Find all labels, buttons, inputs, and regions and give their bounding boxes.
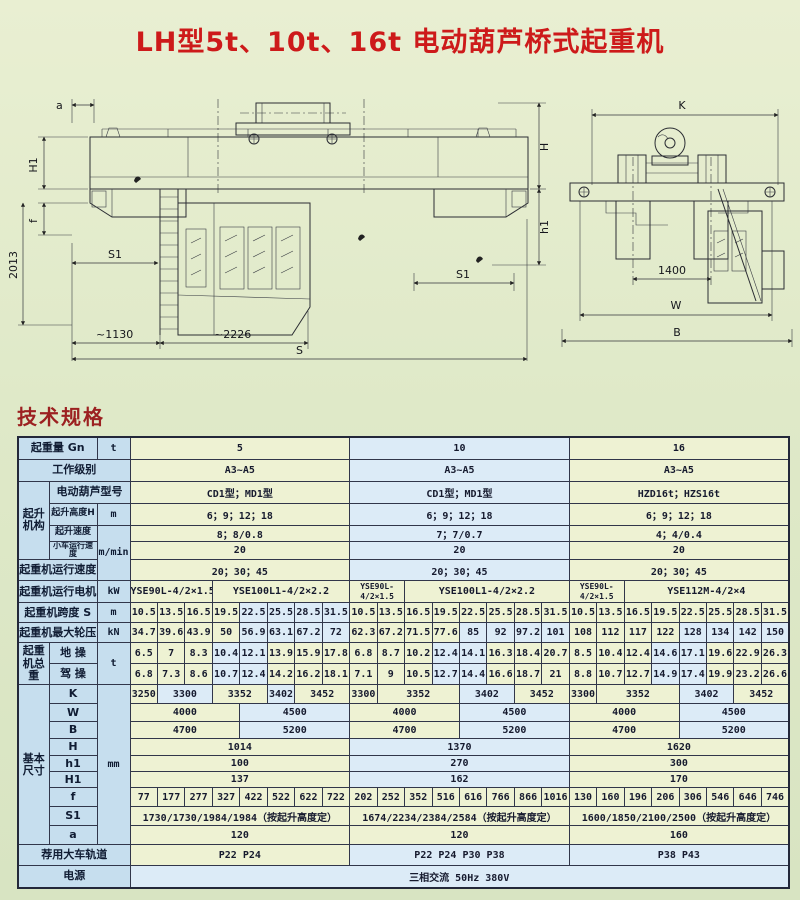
dim-a-label: a (56, 99, 63, 112)
spec-cell: 422 (240, 788, 267, 807)
spec-cell: 6；9；12；18 (350, 503, 570, 525)
row-group: 起重机总重 (18, 643, 49, 685)
spec-cell: 13.9 (267, 643, 294, 664)
spec-cell: 1620 (569, 739, 789, 756)
spec-cell: 22.9 (734, 643, 761, 664)
spec-cell: 92 (487, 623, 514, 643)
table-row: 电源三相交流 50Hz 380V (18, 866, 789, 888)
dim-s-label: S (296, 344, 303, 357)
spec-cell: 8.3 (185, 643, 212, 664)
spec-cell: 7.3 (157, 664, 184, 685)
spec-cell: 206 (652, 788, 679, 807)
spec-cell: 13.5 (157, 603, 184, 623)
row-label: 起升高度H (49, 503, 97, 525)
spec-cell: 14.4 (459, 664, 486, 685)
spec-cell: HZD16t；HZS16t (569, 481, 789, 503)
spec-cell: 108 (569, 623, 596, 643)
spec-cell: 4700 (350, 722, 460, 739)
spec-cell: 97.2 (514, 623, 541, 643)
dim-2013-label: 2013 (8, 251, 20, 279)
spec-cell: 13.5 (377, 603, 404, 623)
spec-cell: 4000 (569, 704, 679, 722)
spec-cell: 19.5 (652, 603, 679, 623)
row-unit: kN (97, 623, 130, 643)
spec-cell: 71.5 (405, 623, 432, 643)
spec-cell: 7；7/0.7 (350, 525, 570, 541)
spec-cell: CD1型；MD1型 (130, 481, 350, 503)
spec-cell: 20 (569, 541, 789, 560)
spec-cell: 16.6 (487, 664, 514, 685)
spec-cell: 28.5 (514, 603, 541, 623)
spec-cell: 3402 (679, 685, 734, 704)
spec-cell: 63.1 (267, 623, 294, 643)
dim-s1-left-label: S1 (108, 248, 122, 261)
table-row: B470052004700520047005200 (18, 722, 789, 739)
row-label: W (49, 704, 97, 722)
spec-cell: YSE90L-4/2×1.5 (130, 581, 212, 603)
spec-cell: 25.5 (707, 603, 734, 623)
spec-cell: 150 (761, 623, 789, 643)
spec-cell: 3452 (295, 685, 350, 704)
spec-cell: 866 (514, 788, 541, 807)
spec-cell: 277 (185, 788, 212, 807)
spec-cell: 6；9；12；18 (569, 503, 789, 525)
spec-cell: 3300 (157, 685, 212, 704)
spec-cell: CD1型；MD1型 (350, 481, 570, 503)
row-group: 基本尺寸 (18, 685, 49, 845)
spec-cell: 77.6 (432, 623, 459, 643)
row-label: 起重量 Gn (18, 437, 97, 459)
row-label: S1 (49, 807, 97, 826)
spec-cell: 25.5 (487, 603, 514, 623)
spec-cell: YSE112M-4/2×4 (624, 581, 789, 603)
spec-cell: 112 (597, 623, 624, 643)
spec-cell: 21 (542, 664, 569, 685)
spec-cell: 137 (130, 772, 350, 788)
dim-w-label: W (671, 299, 682, 312)
spec-cell: 13.5 (597, 603, 624, 623)
spec-cell: 522 (267, 788, 294, 807)
table-row: H101413701620 (18, 739, 789, 756)
spec-cell: 18.4 (514, 643, 541, 664)
row-label: H1 (49, 772, 97, 788)
row-label: 起重机运行速度 (18, 560, 97, 581)
table-row: 起重机运行电机kWYSE90L-4/2×1.5YSE100L1-4/2×2.2Y… (18, 581, 789, 603)
table-row: S11730/1730/1984/1984（按起升高度定）1674/2234/2… (18, 807, 789, 826)
spec-cell: 196 (624, 788, 651, 807)
spec-cell: 10.5 (569, 603, 596, 623)
spec-cell: 20；30；45 (350, 560, 570, 581)
spec-cell: 8；8/0.8 (130, 525, 350, 541)
spec-cell: 26.3 (761, 643, 789, 664)
spec-cell: 3452 (734, 685, 789, 704)
spec-cell: 1600/1850/2100/2500（按起升高度定） (569, 807, 789, 826)
spec-cell: 14.6 (652, 643, 679, 664)
spec-cell: 202 (350, 788, 377, 807)
spec-cell: A3~A5 (130, 459, 350, 481)
spec-cell: 4500 (679, 704, 789, 722)
spec-cell: 14.9 (652, 664, 679, 685)
row-label: a (49, 826, 97, 845)
spec-cell: 10.5 (130, 603, 157, 623)
spec-cell: 25.5 (267, 603, 294, 623)
row-label: K (49, 685, 97, 704)
spec-cell: 100 (130, 756, 350, 772)
spec-cell: 10.4 (212, 643, 239, 664)
table-row: 起升速度m/min8；8/0.87；7/0.74；4/0.4 (18, 525, 789, 541)
section-heading: 技术规格 (17, 401, 800, 430)
spec-cell: 3452 (514, 685, 569, 704)
spec-cell: 10 (350, 437, 570, 459)
spec-cell: 646 (734, 788, 761, 807)
spec-cell: 160 (597, 788, 624, 807)
spec-cell: 4000 (350, 704, 460, 722)
spec-cell: 12.7 (432, 664, 459, 685)
row-unit: m/min (97, 525, 130, 581)
spec-cell: 3352 (377, 685, 459, 704)
table-row: 基本尺寸Kmm325033003352340234523300335234023… (18, 685, 789, 704)
spec-cell: 1016 (542, 788, 569, 807)
spec-cell: 327 (212, 788, 239, 807)
spec-cell: 43.9 (185, 623, 212, 643)
spec-cell: 1730/1730/1984/1984（按起升高度定） (130, 807, 350, 826)
spec-cell: 20；30；45 (569, 560, 789, 581)
spec-cell: 10.7 (212, 664, 239, 685)
spec-cell: 22.5 (240, 603, 267, 623)
spec-cell: 12.1 (240, 643, 267, 664)
row-label: 电动葫芦型号 (49, 481, 130, 503)
spec-cell: 101 (542, 623, 569, 643)
spec-cell: 134 (707, 623, 734, 643)
spec-cell: 300 (569, 756, 789, 772)
spec-cell: 67.2 (295, 623, 322, 643)
spec-cell: 162 (350, 772, 570, 788)
row-unit: t (97, 643, 130, 685)
spec-cell: 72 (322, 623, 349, 643)
spec-cell: 160 (569, 826, 789, 845)
spec-cell: 19.6 (707, 643, 734, 664)
spec-cell: 1370 (350, 739, 570, 756)
spec-cell: 3250 (130, 685, 157, 704)
spec-cell: 10.5 (350, 603, 377, 623)
spec-cell: 12.4 (624, 643, 651, 664)
spec-cell: YSE100L1-4/2×2.2 (405, 581, 570, 603)
spec-cell: 128 (679, 623, 706, 643)
page: { "page": { "title": "LH型5t、10t、16t 电动葫芦… (0, 0, 800, 900)
row-group: 起升机构 (18, 481, 49, 560)
spec-cell: 31.5 (322, 603, 349, 623)
dim-2226-label: ~2226 (214, 328, 251, 341)
spec-cell: 142 (734, 623, 761, 643)
spec-cell: 31.5 (761, 603, 789, 623)
spec-cell: 31.5 (542, 603, 569, 623)
spec-cell: 三相交流 50Hz 380V (130, 866, 789, 888)
spec-cell: 546 (707, 788, 734, 807)
page-title: LH型5t、10t、16t 电动葫芦桥式起重机 (0, 0, 800, 59)
spec-cell: 12.4 (432, 643, 459, 664)
dim-k-label: K (678, 99, 686, 112)
spec-cell: 14.2 (267, 664, 294, 685)
table-row: 起升高度Hm6；9；12；186；9；12；186；9；12；18 (18, 503, 789, 525)
row-label: 起重机最大轮压 (18, 623, 97, 643)
row-label: H (49, 739, 97, 756)
spec-cell: YSE90L-4/2×1.5 (569, 581, 624, 603)
spec-cell: 352 (405, 788, 432, 807)
spec-cell: 23.2 (734, 664, 761, 685)
spec-cell: 22.5 (459, 603, 486, 623)
spec-cell: A3~A5 (569, 459, 789, 481)
table-row: H1137162170 (18, 772, 789, 788)
dim-1130-label: ~1130 (96, 328, 133, 341)
row-label: 地 操 (49, 643, 97, 664)
spec-cell: 10.2 (405, 643, 432, 664)
spec-cell: 3402 (267, 685, 294, 704)
spec-cell: 130 (569, 788, 596, 807)
dim-b-label: B (673, 326, 681, 339)
spec-cell: 22.5 (679, 603, 706, 623)
spec-cell: 20；30；45 (130, 560, 350, 581)
spec-cell: 766 (487, 788, 514, 807)
spec-cell: 5200 (240, 722, 350, 739)
spec-cell: P22 P24 (130, 845, 350, 866)
spec-cell: 6；9；12；18 (130, 503, 350, 525)
table-row: W400045004000450040004500 (18, 704, 789, 722)
spec-cell: 16.2 (295, 664, 322, 685)
spec-cell: 4500 (459, 704, 569, 722)
spec-cell: 20 (130, 541, 350, 560)
spec-cell: 19.9 (707, 664, 734, 685)
spec-cell: 17.1 (679, 643, 706, 664)
spec-cell: 6.5 (130, 643, 157, 664)
spec-cell: A3~A5 (350, 459, 570, 481)
front-view-drawing: a H1 f 2013 S1 ~1130 ~2226 S H (8, 93, 553, 365)
table-row: 起重机总重地 操t6.578.310.412.113.915.917.86.88… (18, 643, 789, 664)
row-label: 电源 (18, 866, 130, 888)
row-label: h1 (49, 756, 97, 772)
spec-cell: 3300 (569, 685, 596, 704)
spec-cell: 28.5 (734, 603, 761, 623)
spec-table: 起重量 Gnt51016工作级别A3~A5A3~A5A3~A5起升机构电动葫芦型… (17, 436, 790, 889)
spec-cell: YSE100L1-4/2×2.2 (212, 581, 349, 603)
spec-cell: 6.8 (130, 664, 157, 685)
spec-cell: 4500 (240, 704, 350, 722)
spec-cell: 3300 (350, 685, 377, 704)
spec-cell: 3352 (597, 685, 679, 704)
spec-cell: 7.1 (350, 664, 377, 685)
row-label: 小车运行速度 (49, 541, 97, 560)
spec-cell: 16.5 (185, 603, 212, 623)
spec-cell: 67.2 (377, 623, 404, 643)
spec-cell: 39.6 (157, 623, 184, 643)
spec-cell: 8.7 (377, 643, 404, 664)
spec-cell: 19.5 (432, 603, 459, 623)
table-row: h1100270300 (18, 756, 789, 772)
spec-cell: 17.4 (679, 664, 706, 685)
row-unit: t (97, 437, 130, 459)
spec-cell: 10.7 (597, 664, 624, 685)
row-label: 工作级别 (18, 459, 130, 481)
spec-cell: 516 (432, 788, 459, 807)
spec-cell: 16.5 (624, 603, 651, 623)
spec-cell: 50 (212, 623, 239, 643)
spec-cell: 4；4/0.4 (569, 525, 789, 541)
row-unit: mm (97, 685, 130, 845)
row-label: 起重机跨度 S (18, 603, 97, 623)
spec-cell: 18.7 (514, 664, 541, 685)
spec-cell: 5200 (459, 722, 569, 739)
spec-cell: 12.7 (624, 664, 651, 685)
table-row: 荐用大车轨道P22 P24P22 P24 P30 P38P38 P43 (18, 845, 789, 866)
spec-cell: 8.6 (185, 664, 212, 685)
spec-cell: 4700 (569, 722, 679, 739)
spec-cell: 306 (679, 788, 706, 807)
spec-cell: 34.7 (130, 623, 157, 643)
row-unit: kW (97, 581, 130, 603)
spec-cell: 16.5 (405, 603, 432, 623)
spec-cell: 77 (130, 788, 157, 807)
table-row: 起升机构电动葫芦型号CD1型；MD1型CD1型；MD1型HZD16t；HZS16… (18, 481, 789, 503)
spec-cell: 1014 (130, 739, 350, 756)
spec-cell: 17.8 (322, 643, 349, 664)
spec-cell: 8.8 (569, 664, 596, 685)
spec-cell: 19.5 (212, 603, 239, 623)
spec-cell: 85 (459, 623, 486, 643)
table-row: 工作级别A3~A5A3~A5A3~A5 (18, 459, 789, 481)
spec-cell: P38 P43 (569, 845, 789, 866)
spec-cell: 15.9 (295, 643, 322, 664)
spec-cell: 28.5 (295, 603, 322, 623)
row-label: f (49, 788, 97, 807)
row-label: 驾 操 (49, 664, 97, 685)
table-row: 起重机最大轮压kN34.739.643.95056.963.167.27262.… (18, 623, 789, 643)
table-row: a120120160 (18, 826, 789, 845)
spec-cell: 616 (459, 788, 486, 807)
spec-cell: 16.3 (487, 643, 514, 664)
spec-cell: P22 P24 P30 P38 (350, 845, 570, 866)
spec-cell: YSE90L-4/2×1.5 (350, 581, 405, 603)
spec-cell: 5 (130, 437, 350, 459)
spec-cell: 14.1 (459, 643, 486, 664)
spec-cell: 56.9 (240, 623, 267, 643)
dim-1400-label: 1400 (658, 264, 686, 277)
spec-cell: 120 (350, 826, 570, 845)
spec-cell: 4000 (130, 704, 240, 722)
dim-f-label: f (27, 218, 40, 223)
table-row: 起重量 Gnt51016 (18, 437, 789, 459)
table-row: 起重机运行速度20；30；4520；30；4520；30；45 (18, 560, 789, 581)
spec-cell: 20 (350, 541, 570, 560)
dim-s1-right-label: S1 (456, 268, 470, 281)
row-unit: m (97, 503, 130, 525)
spec-cell: 117 (624, 623, 651, 643)
spec-cell: 5200 (679, 722, 789, 739)
spec-cell: 3352 (212, 685, 267, 704)
dim-h1-top-label: H1 (27, 157, 40, 172)
table-row: 驾 操6.87.38.610.712.414.216.218.17.1910.5… (18, 664, 789, 685)
row-label: B (49, 722, 97, 739)
row-unit: m (97, 603, 130, 623)
spec-cell: 122 (652, 623, 679, 643)
spec-cell: 4700 (130, 722, 240, 739)
spec-cell: 120 (130, 826, 350, 845)
spec-cell: 10.5 (405, 664, 432, 685)
table-row: f771772773274225226227222022523525166167… (18, 788, 789, 807)
spec-cell: 10.4 (597, 643, 624, 664)
spec-cell: 7 (157, 643, 184, 664)
table-row: 起重机跨度 Sm10.513.516.519.522.525.528.531.5… (18, 603, 789, 623)
row-label: 起重机运行电机 (18, 581, 97, 603)
spec-cell: 20.7 (542, 643, 569, 664)
spec-cell: 3402 (459, 685, 514, 704)
spec-cell: 177 (157, 788, 184, 807)
spec-cell: 170 (569, 772, 789, 788)
technical-drawings: a H1 f 2013 S1 ~1130 ~2226 S H (0, 93, 800, 385)
spec-cell: 62.3 (350, 623, 377, 643)
row-label: 荐用大车轨道 (18, 845, 130, 866)
row-label: 起升速度 (49, 525, 97, 541)
spec-cell: 6.8 (350, 643, 377, 664)
spec-cell: 252 (377, 788, 404, 807)
spec-cell: 746 (761, 788, 789, 807)
spec-cell: 16 (569, 437, 789, 459)
spec-cell: 18.1 (322, 664, 349, 685)
spec-cell: 8.5 (569, 643, 596, 664)
spec-cell: 1674/2234/2384/2584（按起升高度定） (350, 807, 570, 826)
spec-cell: 622 (295, 788, 322, 807)
table-row: 小车运行速度202020 (18, 541, 789, 560)
spec-cell: 270 (350, 756, 570, 772)
spec-cell: 26.6 (761, 664, 789, 685)
spec-cell: 722 (322, 788, 349, 807)
spec-cell: 9 (377, 664, 404, 685)
spec-cell: 12.4 (240, 664, 267, 685)
end-view-drawing: K 1400 (550, 93, 800, 359)
